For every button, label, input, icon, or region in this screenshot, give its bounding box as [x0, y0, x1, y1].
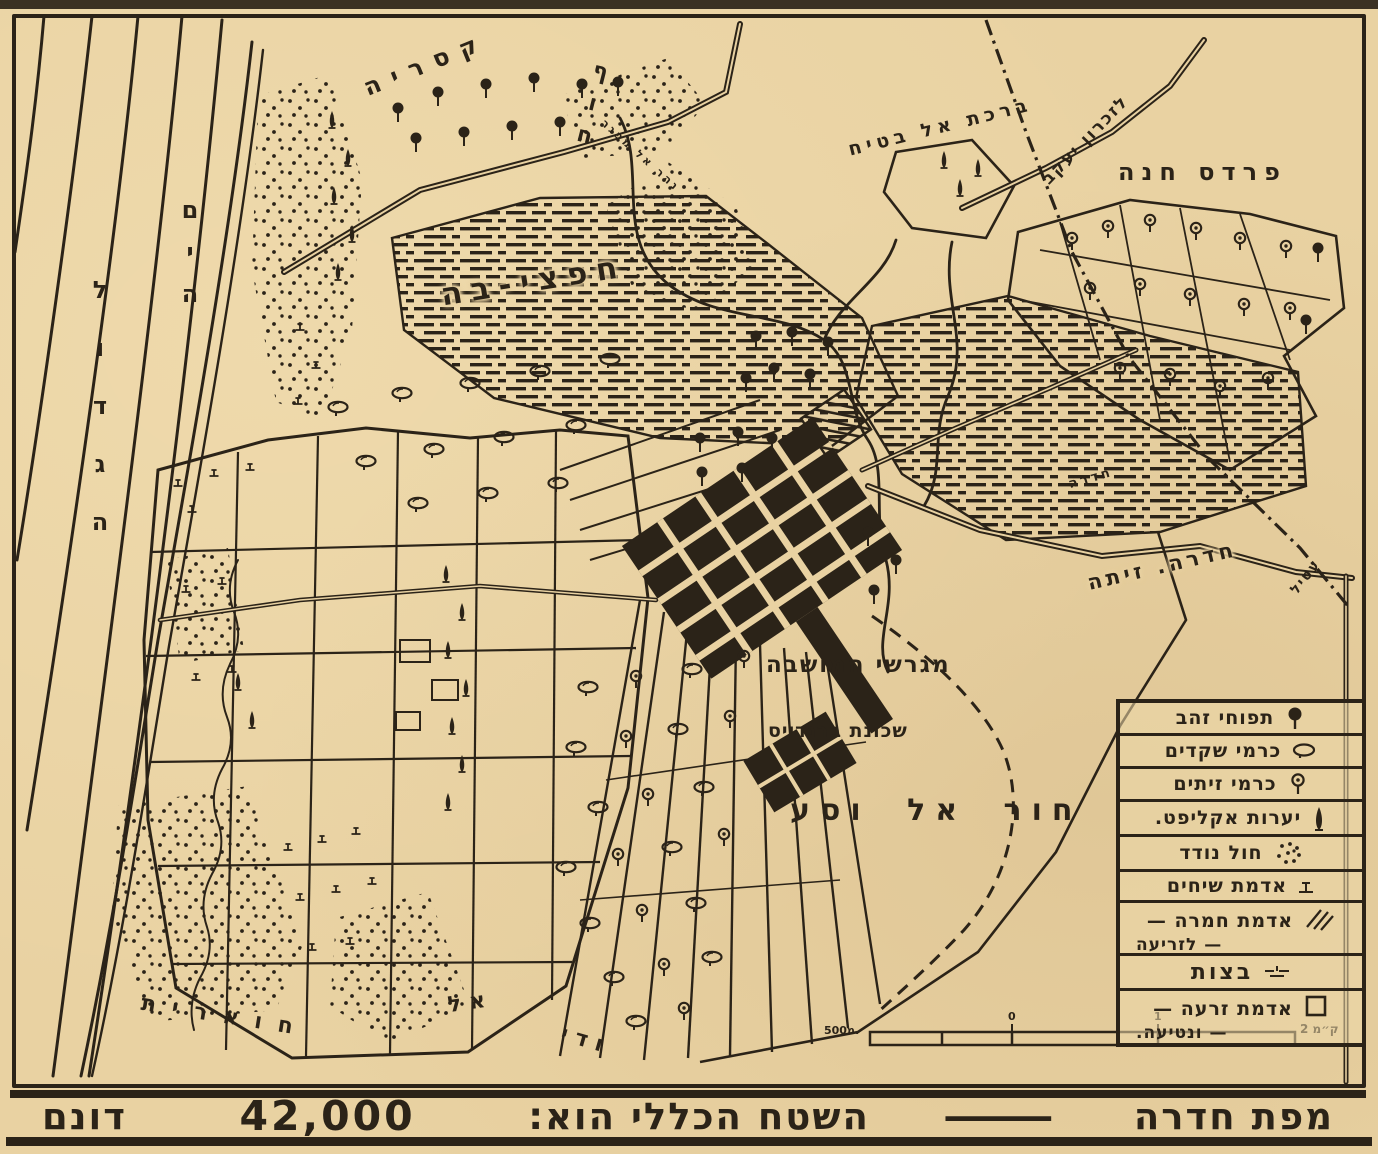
orange-tree-icon [1284, 705, 1306, 731]
caption-dash: — [939, 1095, 1064, 1138]
caption-rule-bottom [6, 1137, 1372, 1146]
almond-tree-icon [1291, 741, 1317, 761]
swamp-icon [1263, 963, 1291, 981]
caption-area-value: 42,000 [240, 1092, 416, 1140]
legend-label-line2: — ונטיעה. [1126, 1023, 1356, 1043]
legend-label-line2: — לזריעה [1126, 935, 1356, 955]
legend-item-olives: כרמי זיתים [1120, 769, 1362, 802]
legend-label: אדמת חמרה — [1147, 910, 1293, 932]
legend-item-sown-land: אדמת זרעה — — ונטיעה. [1120, 991, 1362, 1043]
drifting-sand-icon [1273, 839, 1303, 867]
legend-item-shrub-land: אדמת שיחים [1120, 872, 1362, 903]
caption-body: השטח הכללי הוא: [528, 1095, 870, 1138]
legend-label: בצות [1191, 960, 1253, 985]
legend-label: תפוחי זהב [1176, 707, 1275, 729]
caption-title: מפת חדרה [1134, 1095, 1334, 1138]
shrub-land-icon [1297, 878, 1315, 894]
east-scrub-area [856, 296, 1306, 540]
hamra-soil-hatch-icon [1303, 905, 1335, 936]
brandeis-label: שכונת ברנדייס [768, 722, 908, 741]
legend-item-swamps: בצות [1120, 956, 1362, 991]
colony-plots-label: מגרשי המושבה [766, 654, 951, 677]
khor-al-wasa-label: חור אל וסע [790, 796, 1083, 826]
sown-land-square-icon [1303, 993, 1329, 1024]
map-caption: מפת חדרה — השטח הכללי הוא: 42,000 דונם [14, 1096, 1362, 1136]
scale-zero-label: 0 [1008, 1010, 1016, 1023]
caption-area-unit: דונם [42, 1095, 127, 1138]
hadera-historical-map: { "colors": {"paper": "#e9d2a2", "ink": … [0, 0, 1378, 1154]
legend-label: כרמי זיתים [1173, 773, 1276, 795]
sea-name-label-1: הים [178, 196, 202, 322]
legend-item-eucalyptus: יערות אקליפט. [1120, 802, 1362, 837]
legend-item-drifting-sand: חול נודד [1120, 837, 1362, 872]
legend-item-almonds: כרמי שקדים [1120, 736, 1362, 769]
legend-label: יערות אקליפט. [1155, 807, 1301, 829]
pardes-hanna-label: פרדס חנה [1118, 160, 1287, 184]
birkat-pond [884, 140, 1014, 238]
scale-left-label: 500מ. [824, 1024, 859, 1037]
sea-name-label-2: הגדול [88, 276, 112, 566]
legend-item-oranges: תפוחי זהב [1120, 703, 1362, 736]
legend-label: אדמת זרעה — [1153, 998, 1293, 1020]
legend-item-hamra-soil: אדמת חמרה — — לזריעה [1120, 903, 1362, 956]
legend-label: כרמי שקדים [1165, 740, 1282, 762]
legend-label: אדמת שיחים [1167, 875, 1287, 897]
legend-label: חול נודד [1179, 842, 1262, 864]
olive-tree-icon [1287, 772, 1309, 796]
legend-box: תפוחי זהב כרמי שקדים כרמי זיתים יערות אק… [1116, 699, 1366, 1047]
eucalyptus-tree-icon [1311, 804, 1327, 832]
